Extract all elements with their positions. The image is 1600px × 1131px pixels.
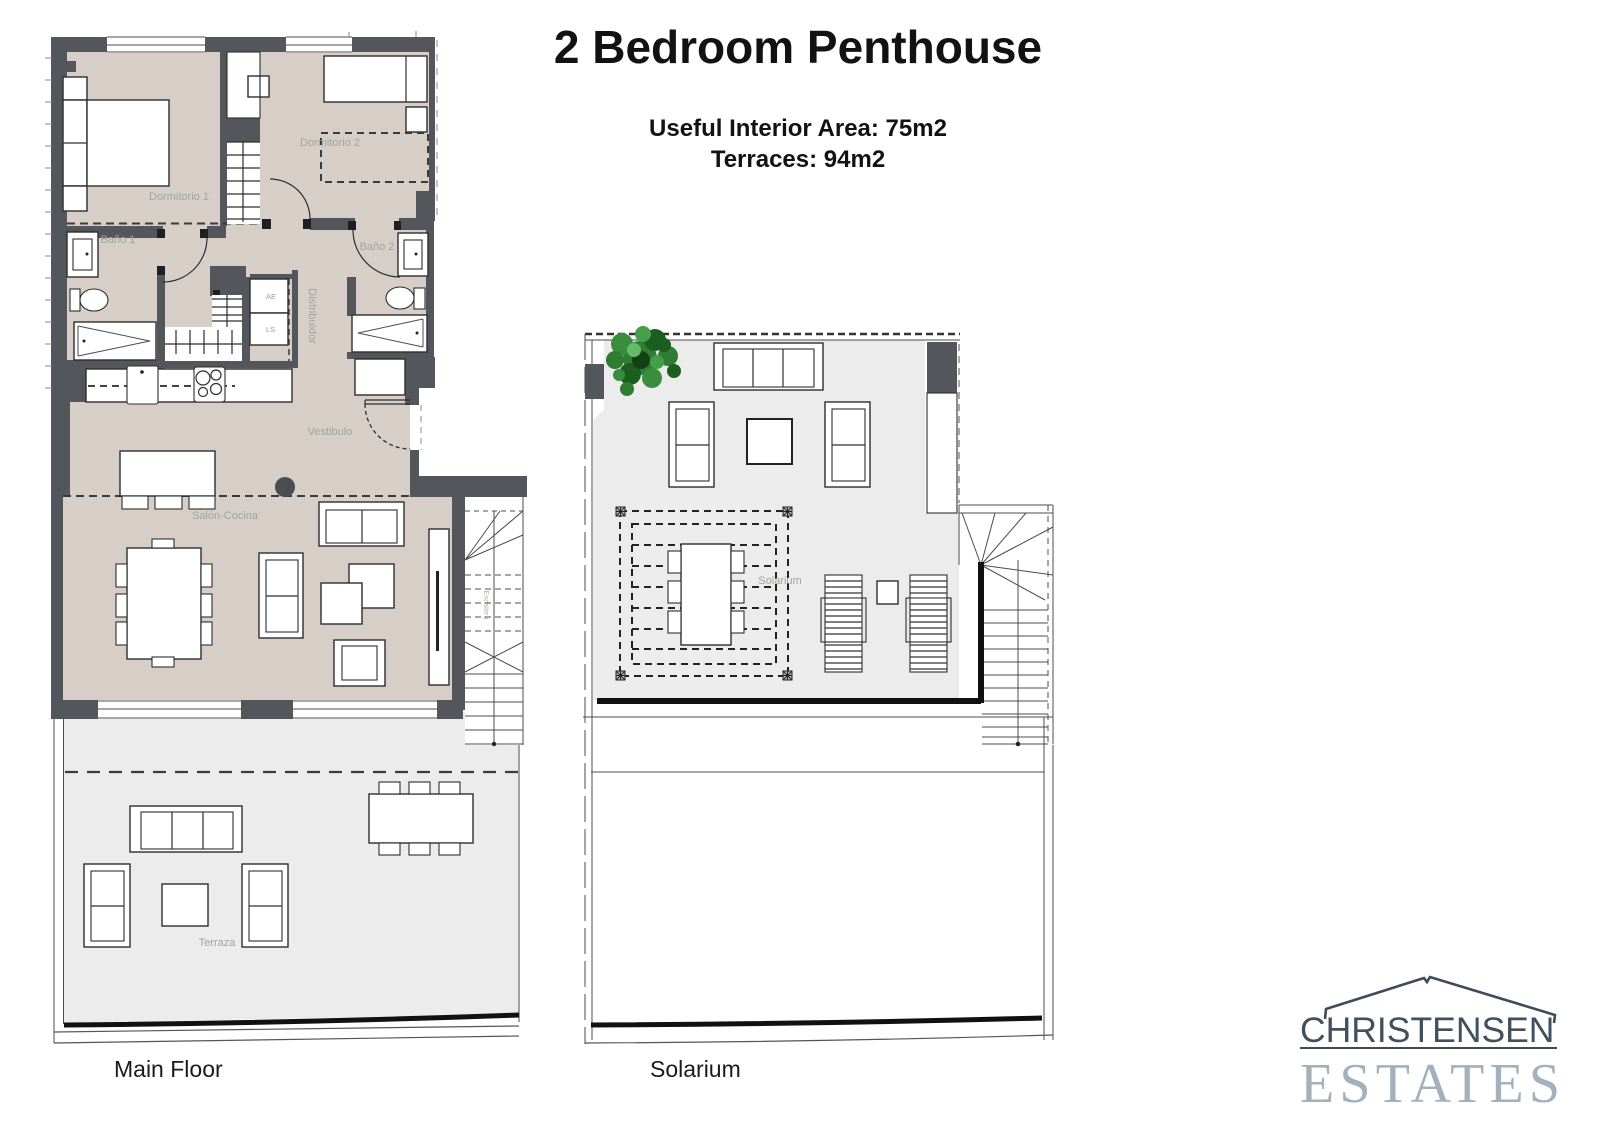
svg-text:Main Floor: Main Floor — [114, 1056, 223, 1082]
svg-text:Escalera: Escalera — [482, 590, 491, 620]
svg-text:Vestibulo: Vestibulo — [308, 426, 353, 438]
svg-text:CHRISTENSEN: CHRISTENSEN — [1300, 1010, 1554, 1050]
svg-text:Useful Interior Area: 75m2: Useful Interior Area: 75m2 — [649, 115, 947, 142]
svg-text:ESTATES: ESTATES — [1300, 1053, 1565, 1115]
svg-text:Dormitorio 1: Dormitorio 1 — [149, 191, 209, 203]
svg-text:Salón-Cocina: Salón-Cocina — [192, 510, 259, 522]
svg-text:Baño 2: Baño 2 — [360, 241, 395, 253]
svg-text:Solarium: Solarium — [758, 575, 801, 587]
svg-text:LS: LS — [266, 325, 275, 334]
svg-text:Terraces: 94m2: Terraces: 94m2 — [711, 146, 885, 173]
svg-text:Distribuidor: Distribuidor — [306, 288, 318, 344]
svg-text:Terraza: Terraza — [199, 937, 237, 949]
svg-text:Dormitorio 2: Dormitorio 2 — [300, 137, 360, 149]
svg-text:AE: AE — [266, 292, 276, 301]
svg-text:2 Bedroom Penthouse: 2 Bedroom Penthouse — [554, 21, 1042, 73]
svg-text:Solarium: Solarium — [650, 1056, 741, 1082]
svg-text:Baño 1: Baño 1 — [101, 234, 136, 246]
